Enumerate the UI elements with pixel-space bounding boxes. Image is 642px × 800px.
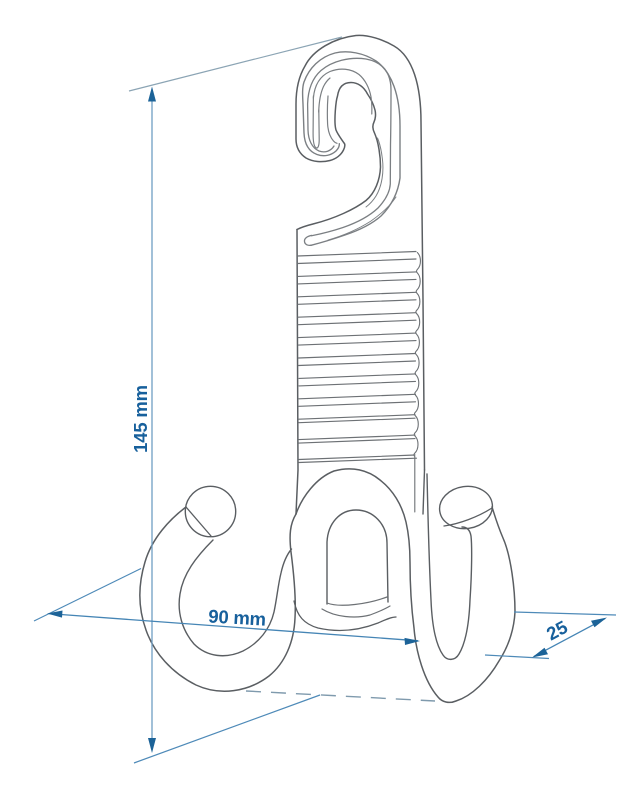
svg-text:90 mm: 90 mm (208, 605, 267, 629)
svg-text:145 mm: 145 mm (130, 385, 151, 453)
svg-text:25: 25 (543, 616, 571, 644)
